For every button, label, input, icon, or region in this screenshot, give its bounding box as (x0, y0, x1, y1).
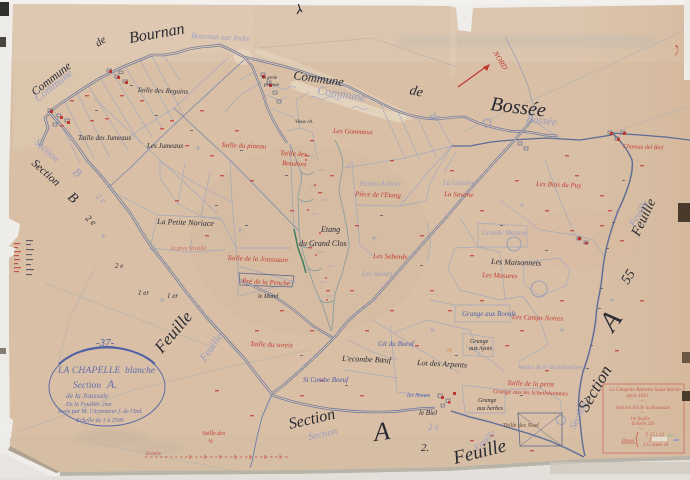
svg-text:—: — (638, 427, 644, 432)
svg-text:St Combe Boeuf: St Combe Boeuf (303, 376, 349, 384)
svg-text:Taille des Jumeaux: Taille des Jumeaux (78, 134, 132, 142)
svg-text:Les Maisonnets: Les Maisonnets (490, 257, 541, 268)
svg-text:Git du Boeuf: Git du Boeuf (378, 340, 415, 348)
svg-text:Echelle de 1 à 2500: Echelle de 1 à 2500 (75, 418, 124, 424)
svg-text:2 e: 2 e (428, 422, 439, 432)
svg-text:Petites Achees: Petites Achees (359, 180, 401, 188)
svg-text:Boudons: Boudons (282, 159, 307, 168)
svg-text:Grande Maison: Grande Maison (482, 229, 527, 237)
svg-text:2 e: 2 e (115, 262, 123, 270)
svg-text:La Chapelle Blanche Saint Mart: La Chapelle Blanche Saint Martin (608, 387, 681, 393)
svg-text:Pièce de l'Etang: Pièce de l'Etang (354, 190, 402, 200)
svg-text:LA CHAPELLE: LA CHAPELLE (57, 366, 120, 376)
svg-text:Les Gommeux: Les Gommeux (332, 127, 374, 136)
svg-text:1 er: 1 er (167, 292, 178, 300)
svg-text:Taille des: Taille des (280, 149, 307, 158)
svg-text:L'ecombe Bœuf: L'ecombe Bœuf (341, 354, 393, 365)
svg-text:de la Joussaie: de la Joussaie (66, 391, 109, 400)
svg-text:pelouse: pelouse (263, 83, 280, 88)
svg-text:Etang: Etang (320, 225, 340, 234)
svg-text:Taille des Noel: Taille des Noel (503, 423, 539, 429)
svg-text:La Savane: La Savane (443, 190, 474, 199)
svg-text:Grange aux Boeufs: Grange aux Boeufs (462, 310, 516, 318)
svg-text:du Grand Clos: du Grand Clos (299, 239, 347, 248)
svg-text:Taille du soreix: Taille du soreix (250, 340, 294, 350)
svg-text:le Murel: le Murel (258, 294, 279, 300)
svg-text:Taille de la perte: Taille de la perte (507, 379, 555, 389)
svg-text:les Noues: les Noues (407, 393, 431, 399)
svg-text:La Gidoine: La Gidoine (442, 179, 475, 187)
svg-text:2.: 2. (421, 442, 429, 454)
svg-text:Grange: Grange (470, 339, 489, 345)
svg-text:Les Bois du Puy: Les Bois du Puy (535, 180, 582, 190)
svg-text:Saille des: Saille des (202, 431, 226, 437)
svg-text:Section: Section (73, 381, 101, 391)
svg-text:Grange: Grange (478, 398, 497, 404)
svg-text:Malles de la Blanchardiere: Malles de la Blanchardiere (517, 365, 584, 371)
svg-text:le Biel: le Biel (419, 409, 437, 417)
svg-text:34: 34 (445, 347, 452, 354)
svg-text:A.: A. (106, 377, 117, 391)
svg-text:la grele: la grele (262, 76, 278, 81)
svg-text:Les Jumeaux: Les Jumeaux (146, 142, 184, 150)
svg-text:Taille du pineau: Taille du pineau (221, 141, 267, 151)
svg-text:la pres Nivalle: la pres Nivalle (171, 246, 206, 252)
svg-text:levée par M. l'Arpenteur f. de: levée par M. l'Arpenteur f. de l'Ind. (58, 408, 143, 415)
svg-text:1 er: 1 er (138, 289, 149, 297)
svg-text:Les Sueurs: Les Sueurs (361, 270, 393, 278)
svg-text:f.12 datée 18: f.12 datée 18 (644, 443, 670, 448)
svg-text:¼: ¼ (208, 439, 213, 445)
svg-text:aux Ayots: aux Ayots (469, 346, 493, 352)
svg-text:Vieux ch.: Vieux ch. (295, 120, 313, 125)
svg-text:—: — (639, 411, 645, 416)
svg-text:En la Feuillée 2me: En la Feuillée 2me (65, 402, 112, 408)
svg-text:—: — (638, 399, 644, 404)
svg-text:Les Sabords: Les Sabords (372, 252, 408, 261)
svg-text:après 1830: après 1830 (626, 394, 648, 399)
svg-text:aux herbes: aux herbes (477, 406, 504, 412)
svg-text:blanche: blanche (125, 366, 155, 376)
svg-text:Les Masures: Les Masures (481, 271, 518, 280)
